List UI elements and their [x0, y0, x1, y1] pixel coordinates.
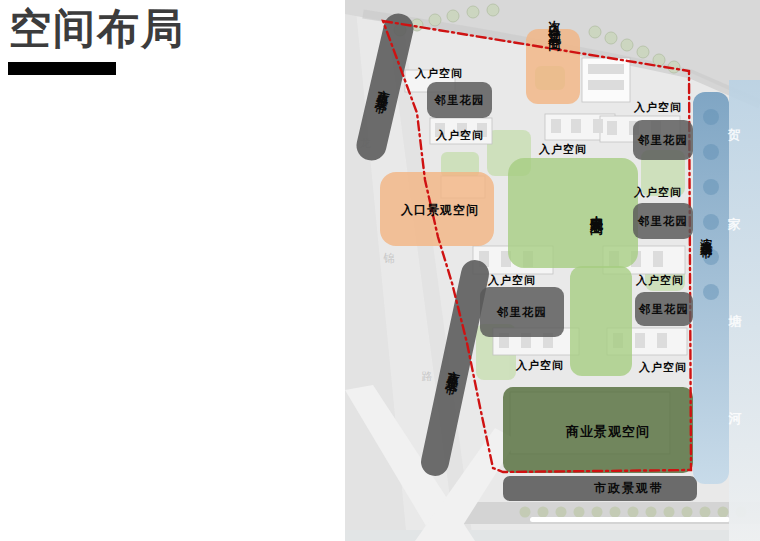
river-name-char: 贺: [728, 126, 741, 144]
waterfront-belt-zone: [693, 92, 729, 484]
street-name-char: 路: [422, 369, 433, 384]
neighborhood-garden-label: 邻里花园: [638, 214, 688, 229]
entry-space-label: 入户空间: [539, 142, 587, 157]
neighborhood-garden-label: 邻里花园: [435, 93, 485, 108]
river-name-char: 河: [729, 410, 742, 428]
entry-space-label: 入户空间: [516, 358, 564, 373]
central-landscape-label: 中央景观空间: [587, 205, 605, 211]
page-title: 空间布局: [9, 6, 185, 52]
neighborhood-garden-box: 邻里花园: [633, 120, 693, 160]
neighborhood-garden-box: 邻里花园: [635, 292, 693, 326]
entry-space-label: 入户空间: [415, 66, 463, 81]
main-entrance-label: 入口景观空间: [401, 202, 479, 219]
municipal-belt-south: 市政景观带: [503, 476, 697, 501]
central-landscape-zone: [508, 158, 638, 268]
municipal-belt-label: 市政景观带: [445, 359, 465, 377]
municipal-belt-label: 市政景观带: [594, 480, 664, 497]
neighborhood-garden-box: 邻里花园: [480, 287, 564, 337]
title-underline-bar: [8, 62, 116, 75]
river-name-char: 家: [728, 216, 741, 234]
municipal-belt-label: 市政景观带: [375, 78, 395, 96]
entry-space-label: 入户空间: [634, 100, 682, 115]
secondary-entrance-zone: [526, 29, 580, 104]
waterfront-trees-graphic: [693, 92, 729, 484]
neighborhood-garden-label: 邻里花园: [638, 133, 688, 148]
entry-space-label: 入户空间: [639, 360, 687, 375]
entry-space-label: 入户空间: [488, 273, 536, 288]
slide: 空间布局: [0, 0, 760, 541]
river-area: [729, 80, 760, 541]
neighborhood-garden-label: 邻里花园: [639, 302, 689, 317]
neighborhood-garden-label: 邻里花园: [497, 305, 547, 320]
neighborhood-garden-box: 邻里花园: [633, 203, 693, 239]
street-name-char: 锦: [384, 251, 395, 266]
commercial-landscape-label: 商业景观空间: [566, 423, 650, 441]
site-plan-map: 龙 锦 路 市政景观带 市政景观带 市政景观带: [345, 0, 760, 541]
entry-space-label: 入户空间: [634, 185, 682, 200]
waterfront-belt-label: 滨水景观带: [698, 228, 715, 238]
secondary-entrance-label: 次入口景观空间: [546, 10, 563, 31]
neighborhood-garden-box: 邻里花园: [427, 82, 492, 118]
central-landscape-zone-south: [570, 266, 632, 376]
river-name-char: 塘: [729, 313, 742, 331]
entry-space-label: 入户空间: [436, 128, 484, 143]
entry-space-label: 入户空间: [636, 273, 684, 288]
